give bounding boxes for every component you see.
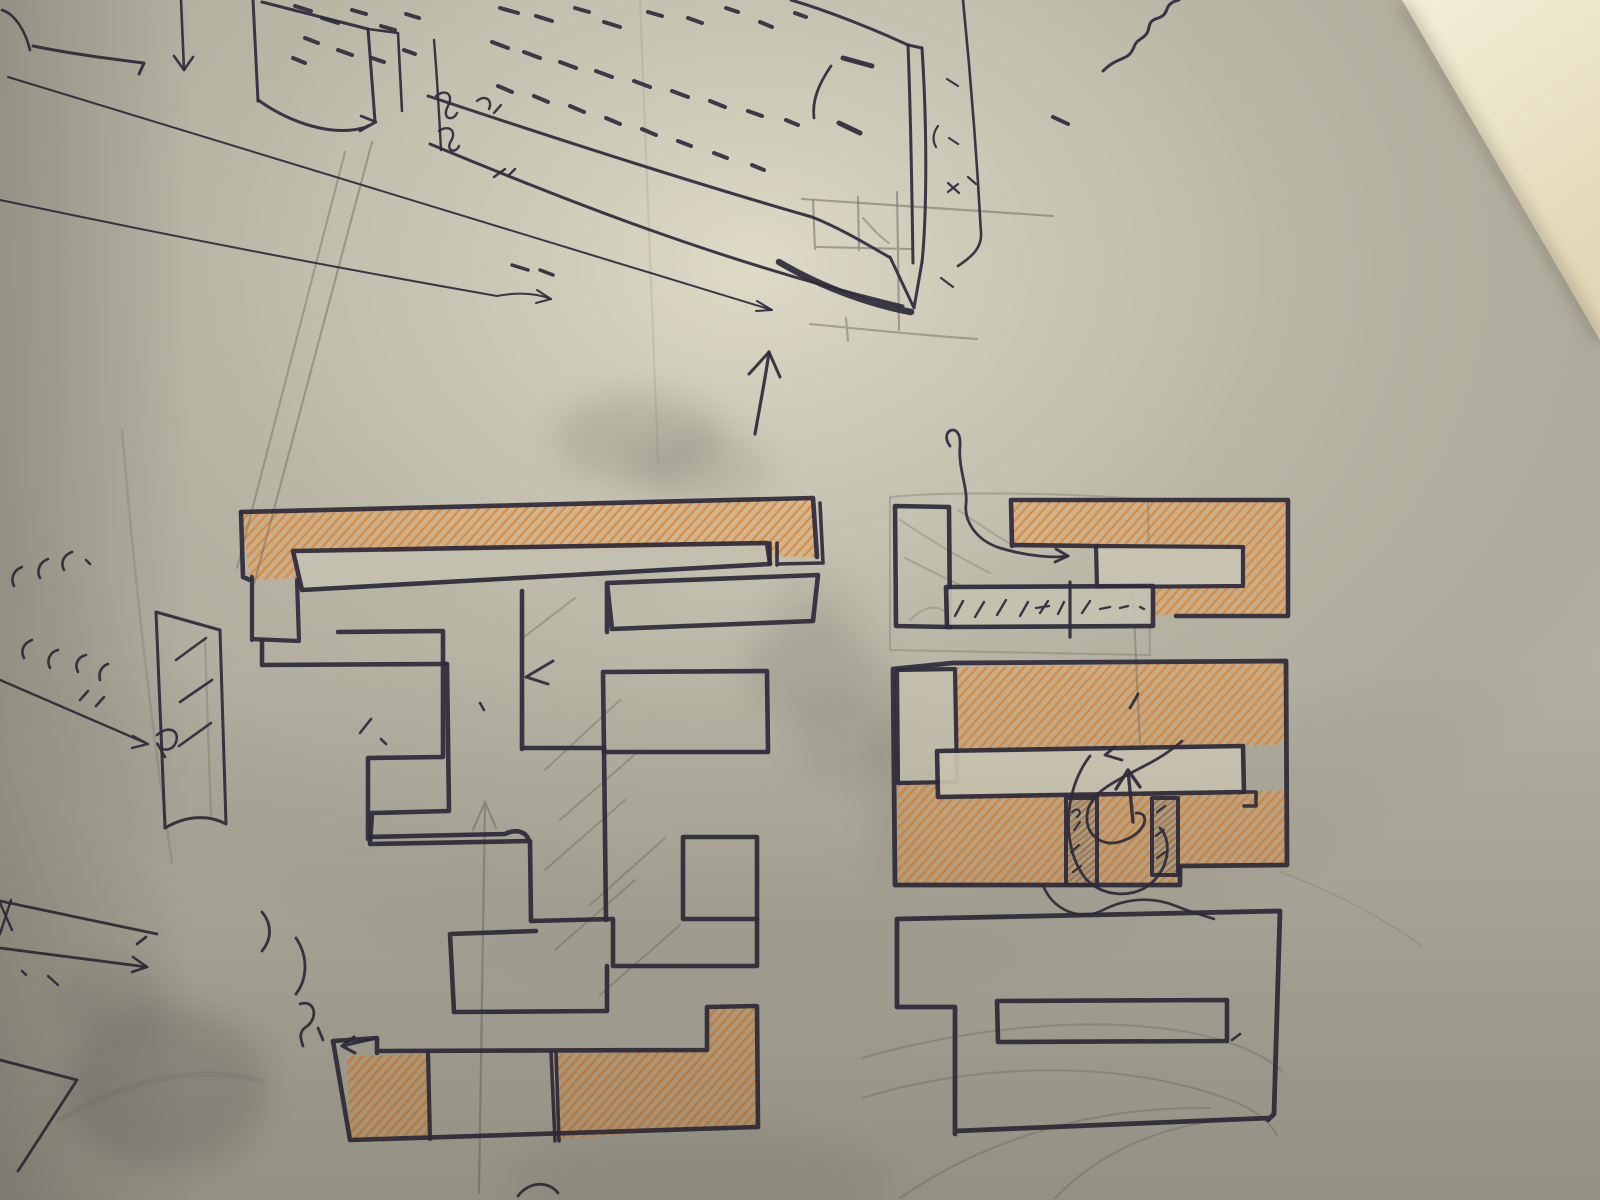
photo-of-architectural-sketch [0, 0, 1600, 1200]
vignette-left [0, 0, 1600, 1200]
sketch-canvas [0, 0, 1600, 1200]
